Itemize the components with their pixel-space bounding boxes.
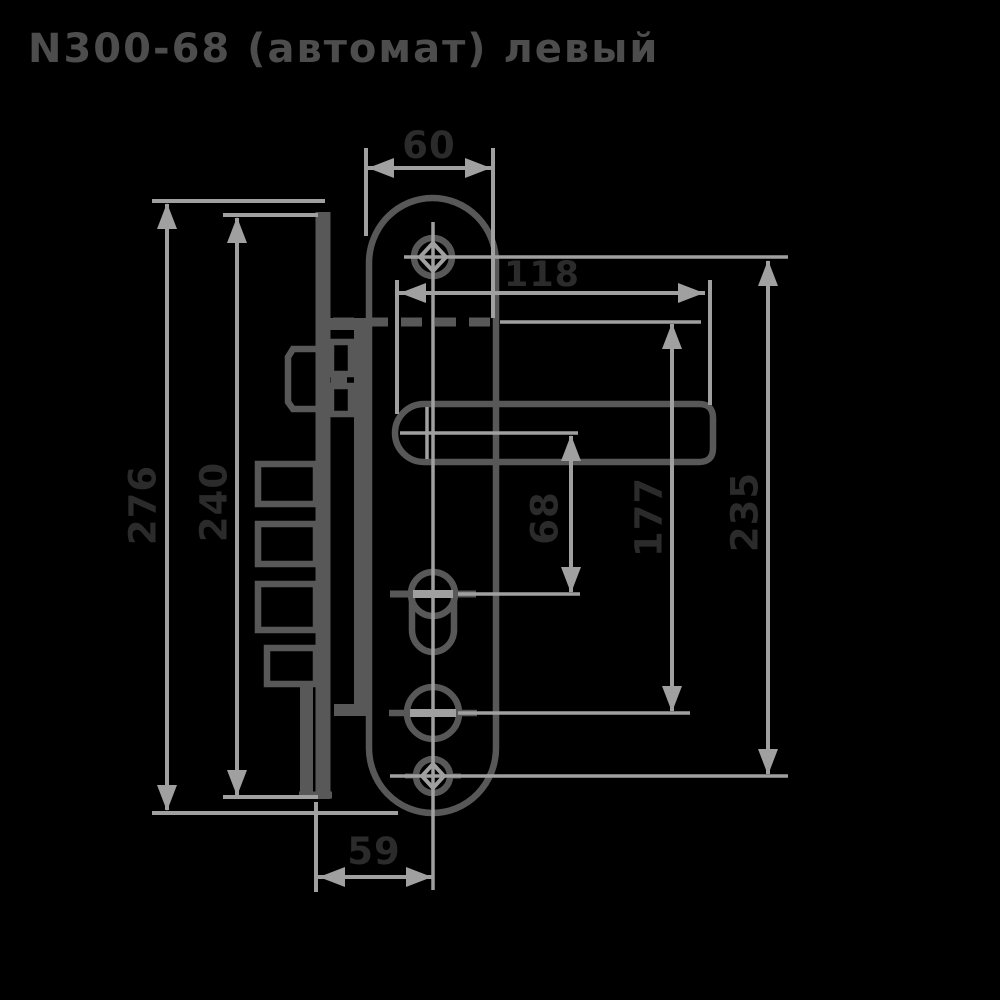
- drawing-page: N300-68 (автомат) левый: [0, 0, 1000, 1000]
- drawing-title: N300-68 (автомат) левый: [28, 26, 659, 72]
- dim-label: 177: [628, 477, 671, 557]
- dim-label: 59: [347, 830, 401, 873]
- dim-label: 235: [724, 472, 767, 552]
- dim-label: 276: [122, 465, 165, 545]
- dim-label: 118: [504, 255, 580, 295]
- dim-label: 60: [402, 124, 456, 167]
- drawing-canvas: N300-68 (автомат) левый: [0, 0, 1000, 1000]
- dim-label: 68: [524, 491, 567, 545]
- dim-label: 240: [193, 462, 236, 542]
